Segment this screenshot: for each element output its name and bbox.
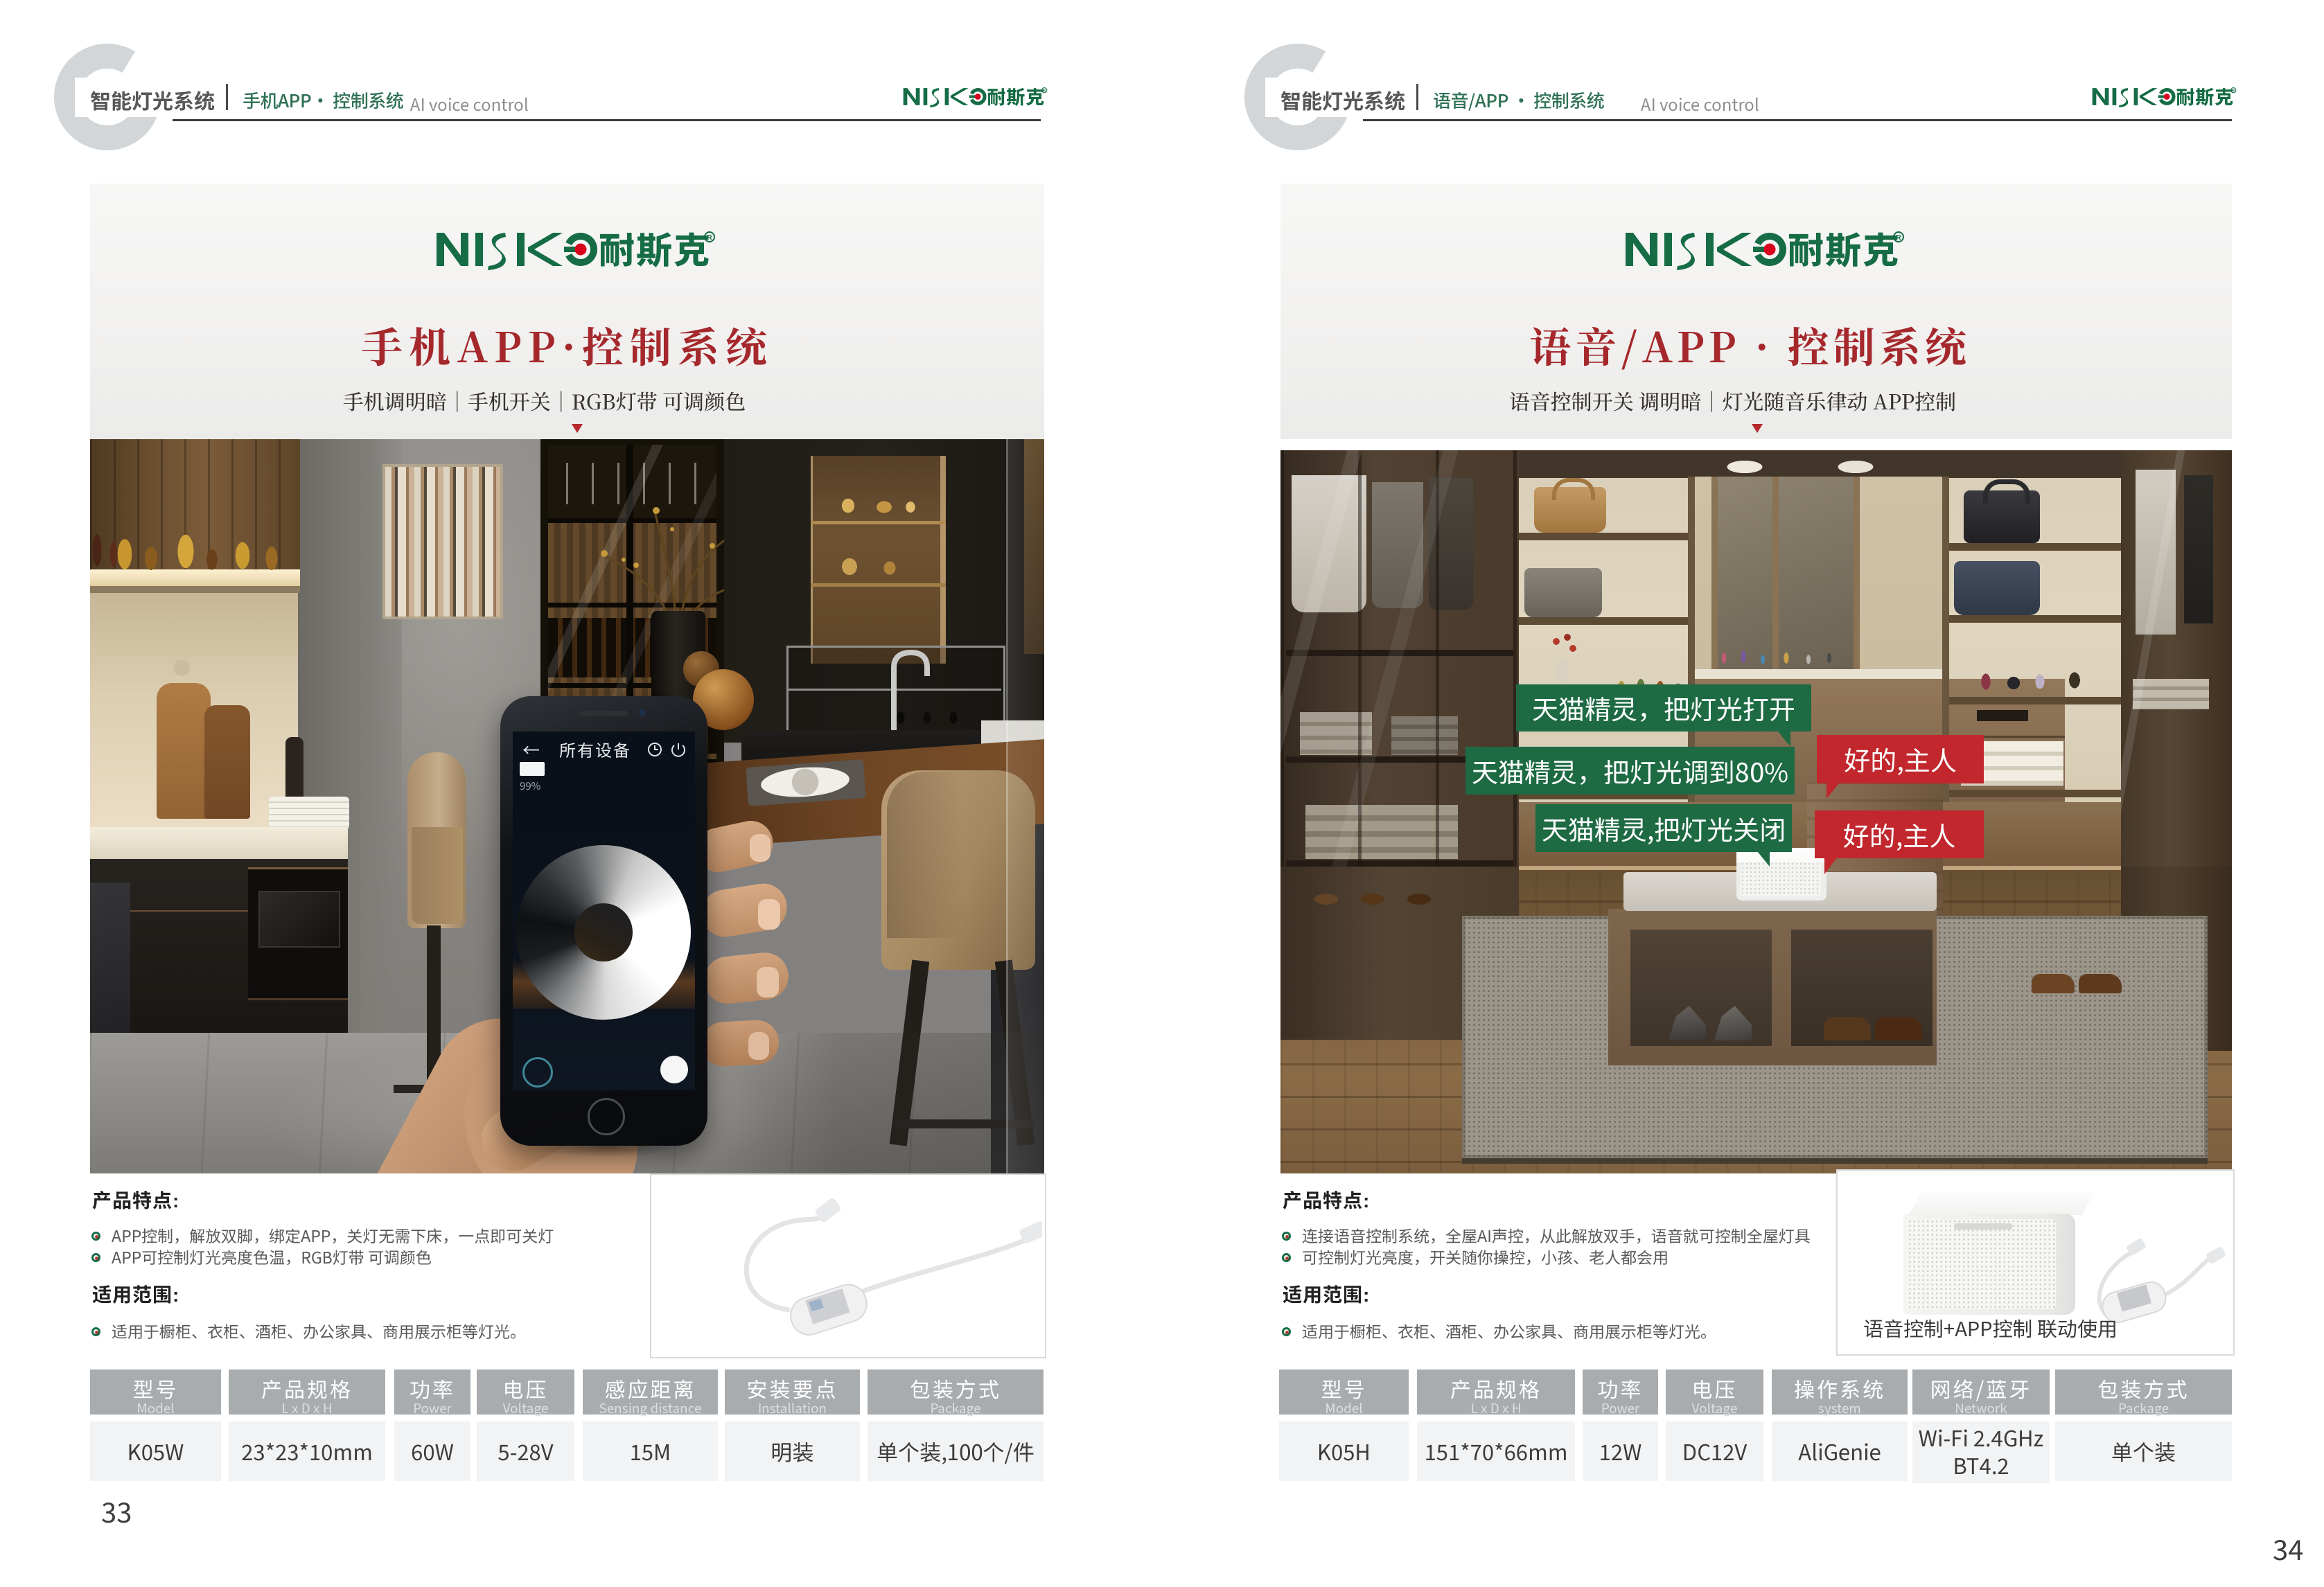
svg-text:耐斯克: 耐斯克 xyxy=(987,86,1046,107)
svg-text:R: R xyxy=(707,234,712,242)
svg-text:耐斯克: 耐斯克 xyxy=(599,229,711,270)
svg-text:R: R xyxy=(1896,234,1901,242)
svg-text:耐斯克: 耐斯克 xyxy=(2176,86,2235,107)
svg-text:耐斯克: 耐斯克 xyxy=(1788,229,1900,270)
svg-text:R: R xyxy=(1043,89,1046,93)
svg-text:R: R xyxy=(2232,89,2235,93)
